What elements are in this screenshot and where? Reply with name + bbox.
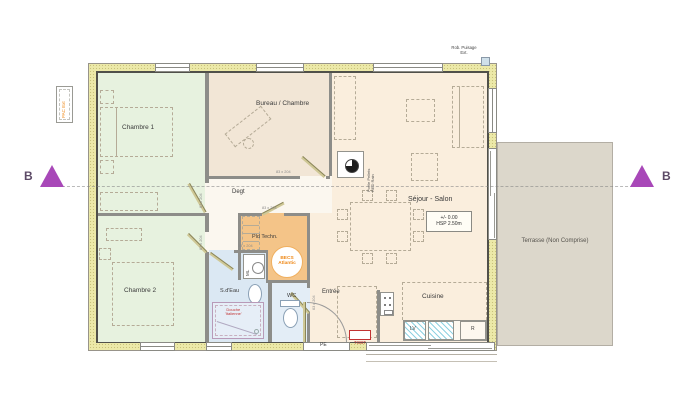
dishwasher-label: LV bbox=[410, 327, 416, 333]
terrace-step bbox=[366, 361, 497, 362]
nightstand bbox=[100, 160, 114, 174]
door-dim: 83 x 204 bbox=[262, 206, 277, 210]
bed bbox=[100, 107, 173, 157]
label-wc: WC bbox=[287, 293, 296, 299]
pellet-stove bbox=[337, 151, 364, 178]
pellet-stove-label: Poêle Pellets RED Rain bbox=[367, 169, 376, 192]
door-dim: 83 x 204 bbox=[199, 235, 203, 250]
window bbox=[155, 63, 190, 72]
shower: Douche 'Italienne' bbox=[212, 302, 264, 339]
wall bbox=[326, 176, 330, 179]
entry-door-label: PE bbox=[320, 343, 327, 349]
bed-pillow-line bbox=[116, 108, 117, 156]
floorplan-canvas: Terrasse (Non Comprise) PE bbox=[0, 0, 700, 420]
nightstand bbox=[100, 90, 114, 104]
kitchen-counter-outline bbox=[402, 282, 487, 320]
dining-table bbox=[350, 202, 411, 251]
wall bbox=[209, 176, 300, 179]
elevation-box: +/- 0.00 HSP 2.50m bbox=[426, 211, 472, 232]
water-heater: BECS Atlantic bbox=[271, 246, 303, 278]
wall bbox=[307, 280, 310, 288]
sink-unit bbox=[428, 321, 454, 340]
chair bbox=[413, 209, 424, 220]
sliding-bay-window bbox=[488, 148, 497, 240]
tap-note: Rob. Puisage Ext. bbox=[438, 46, 490, 55]
armchair bbox=[406, 99, 435, 122]
section-cut-line bbox=[62, 186, 638, 187]
chair bbox=[386, 253, 397, 264]
wall bbox=[205, 213, 209, 232]
wall bbox=[205, 252, 209, 342]
desk-chair bbox=[243, 138, 254, 149]
window bbox=[140, 342, 175, 351]
nightstand bbox=[99, 248, 111, 260]
heat-pump-label: PAC Ext bbox=[62, 101, 67, 118]
wall bbox=[205, 73, 209, 183]
window bbox=[206, 342, 232, 351]
wardrobe bbox=[106, 228, 142, 241]
label-chambre1: Chambre 1 bbox=[122, 124, 154, 131]
door-dim: 83 x 204 bbox=[199, 193, 203, 208]
chair bbox=[337, 209, 348, 220]
wall bbox=[266, 252, 268, 280]
label-sdeau: S.d'Eau bbox=[220, 288, 239, 294]
fridge-label: R bbox=[471, 327, 475, 333]
label-cuisine: Cuisine bbox=[422, 293, 444, 300]
cooktop bbox=[380, 292, 394, 316]
closet bbox=[334, 76, 356, 140]
washbasin bbox=[248, 284, 262, 304]
washing-machine: ML bbox=[243, 254, 265, 279]
door-entree-leaf bbox=[303, 302, 306, 342]
wall bbox=[266, 280, 310, 283]
section-label-left: B bbox=[24, 169, 33, 183]
wall bbox=[234, 250, 268, 253]
wall bbox=[329, 73, 332, 176]
tgbt-box: TGBT bbox=[349, 330, 371, 340]
room-bureau bbox=[209, 73, 329, 176]
label-pld: Pld Techn. bbox=[252, 234, 278, 240]
chair bbox=[413, 231, 424, 242]
door-dim: 63 x 204 bbox=[312, 295, 316, 310]
section-label-right: B bbox=[662, 169, 671, 183]
door-dim: 83 x 204 bbox=[276, 170, 291, 174]
wall bbox=[268, 280, 272, 342]
tap-icon bbox=[481, 57, 490, 66]
label-bureau: Bureau / Chambre bbox=[256, 100, 309, 107]
toilet-tank bbox=[280, 300, 300, 307]
section-arrow-right bbox=[630, 165, 654, 187]
window bbox=[373, 63, 443, 72]
window bbox=[488, 88, 497, 133]
label-entree: Entrée bbox=[322, 289, 340, 296]
terrace-step bbox=[366, 354, 497, 355]
window bbox=[256, 63, 304, 72]
label-degt: Degt bbox=[232, 189, 245, 196]
wall bbox=[307, 213, 310, 280]
chair bbox=[386, 190, 397, 201]
door-dim: 83 x 204 bbox=[238, 244, 253, 248]
chair bbox=[362, 253, 373, 264]
sliding-bay-window bbox=[366, 342, 495, 351]
sofa bbox=[452, 86, 484, 148]
coffee-table bbox=[411, 153, 438, 181]
label-sejour: Séjour - Salon bbox=[408, 196, 452, 204]
section-arrow-left bbox=[40, 165, 64, 187]
terrace-label: Terrasse (Non Comprise) bbox=[499, 238, 611, 245]
sofa-line bbox=[459, 87, 460, 147]
wall bbox=[284, 213, 307, 216]
toilet-bowl bbox=[283, 308, 298, 328]
wardrobe bbox=[100, 192, 158, 211]
wall bbox=[98, 213, 205, 216]
label-chambre2: Chambre 2 bbox=[124, 287, 156, 294]
chair bbox=[337, 231, 348, 242]
heat-pump-box: PAC Ext bbox=[56, 86, 73, 123]
